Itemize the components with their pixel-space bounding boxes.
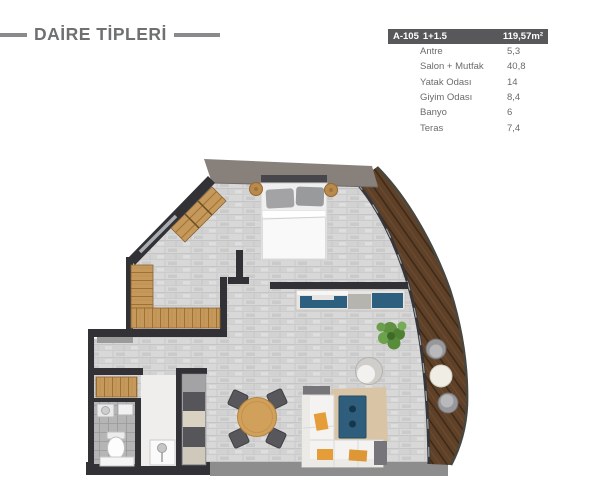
entry-threshold [97,337,133,343]
side-table [374,441,387,465]
floor-plan [0,0,600,499]
dressing-wardrobe-horizontal [131,308,220,328]
kitchen-column [182,374,206,465]
pillow [266,188,295,208]
hall-cabinet [96,377,137,397]
entry-wall [88,329,227,337]
bed-headboard [261,175,327,183]
page: DAİRE TİPLERİ A-1051+1.5 119,57m² Antre5… [0,0,600,499]
bath-top-wall [92,368,143,375]
duvet-fold [263,211,326,217]
toilet [108,437,125,459]
bath-divider-wall [135,402,141,466]
bathroom-sink [118,404,133,415]
shower-head [158,444,167,453]
terrace-table [430,365,452,387]
kitchen-top-wall [182,368,207,374]
sofa-pillow [317,449,333,460]
dining-table [238,398,277,437]
pillow [296,187,325,207]
coffee-table [339,396,366,438]
bedroom-door-jamb-h [228,277,249,284]
dressing-east-wall [220,277,227,333]
bath-mid-wall [92,398,143,402]
bedroom [250,175,338,260]
bedroom-south-wall [270,282,408,289]
kitchen-west-wall [176,368,182,466]
bedroom-door-jamb-v [236,250,243,277]
sofa-pillow [349,449,368,461]
vanity [100,457,134,466]
kitchen-counter [296,290,405,310]
blue-cabinet [372,293,403,308]
